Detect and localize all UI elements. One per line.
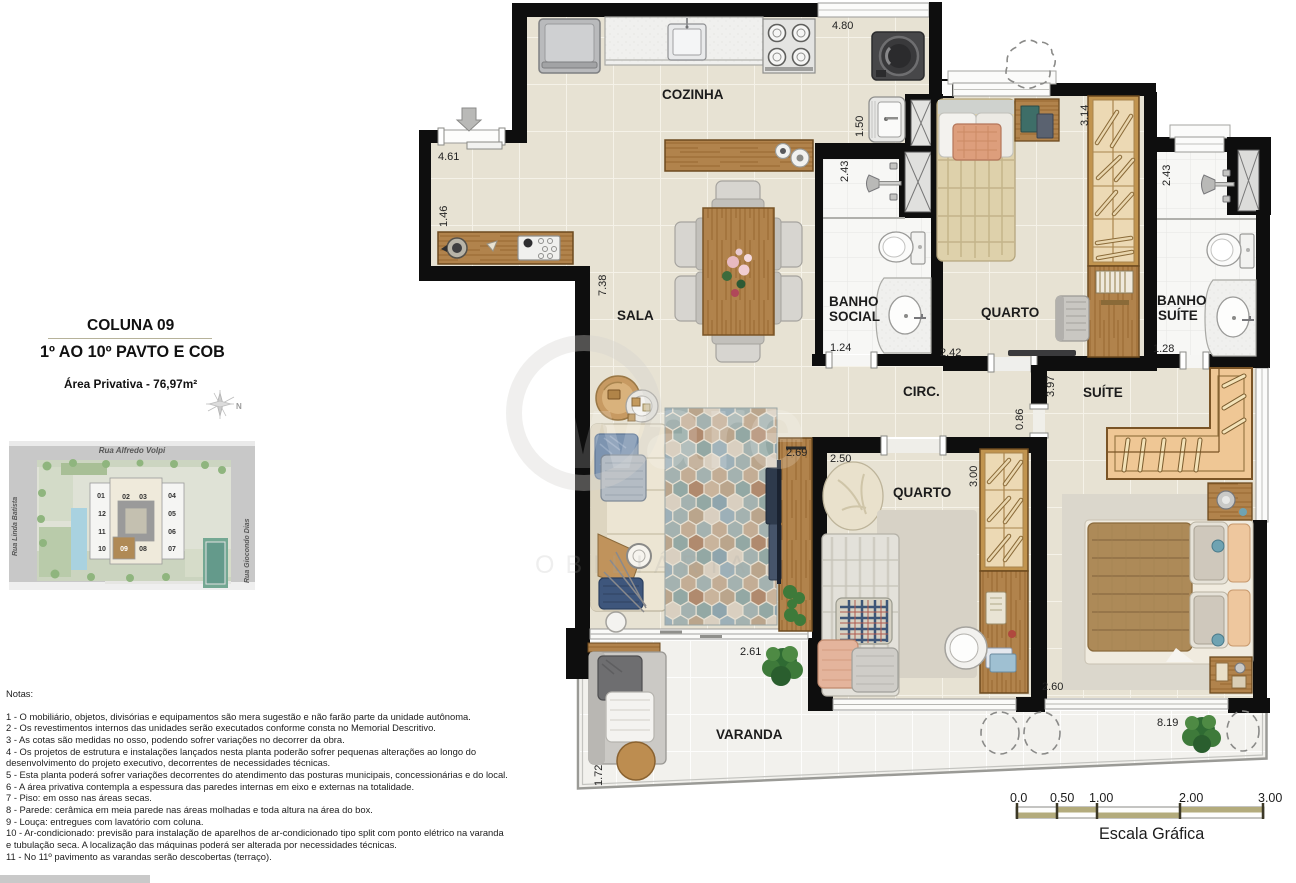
svg-text:3.14: 3.14 <box>1079 105 1091 126</box>
svg-text:0.0: 0.0 <box>1010 791 1027 805</box>
svg-text:2.00: 2.00 <box>1179 791 1203 805</box>
svg-text:7.38: 7.38 <box>597 275 609 296</box>
svg-text:QUARTO: QUARTO <box>893 485 951 500</box>
svg-text:2.43: 2.43 <box>1161 165 1173 186</box>
svg-text:SOCIAL: SOCIAL <box>829 309 880 324</box>
svg-text:COZINHA: COZINHA <box>662 87 724 102</box>
svg-text:2.42: 2.42 <box>940 347 961 359</box>
svg-text:1.50: 1.50 <box>854 116 866 137</box>
svg-text:1.72: 1.72 <box>593 765 605 786</box>
svg-text:3.97: 3.97 <box>1045 376 1057 397</box>
svg-text:Escala Gráfica: Escala Gráfica <box>1099 825 1204 843</box>
svg-text:2.50: 2.50 <box>830 453 851 465</box>
svg-text:BANHO: BANHO <box>1157 293 1207 308</box>
svg-text:1.28: 1.28 <box>1153 343 1174 355</box>
svg-text:4.61: 4.61 <box>438 151 459 163</box>
svg-text:3.00: 3.00 <box>1258 791 1282 805</box>
svg-text:CIRC.: CIRC. <box>903 384 940 399</box>
svg-text:SUÍTE: SUÍTE <box>1083 385 1123 400</box>
svg-text:8.19: 8.19 <box>1157 717 1178 729</box>
svg-text:2.61: 2.61 <box>740 646 761 658</box>
svg-text:VARANDA: VARANDA <box>716 727 783 742</box>
svg-text:SALA: SALA <box>617 308 654 323</box>
svg-text:QUARTO: QUARTO <box>981 305 1039 320</box>
svg-text:0.50: 0.50 <box>1050 791 1074 805</box>
svg-text:OBILIÁRIA: OBILIÁRIA <box>535 550 756 579</box>
svg-text:3.00: 3.00 <box>968 466 980 487</box>
svg-text:ware: ware <box>559 370 806 491</box>
svg-text:2.69: 2.69 <box>786 447 807 459</box>
svg-text:1.00: 1.00 <box>1089 791 1113 805</box>
svg-text:2.43: 2.43 <box>839 161 851 182</box>
svg-text:1.24: 1.24 <box>830 342 851 354</box>
svg-text:2.60: 2.60 <box>1042 681 1063 693</box>
svg-text:4.80: 4.80 <box>832 20 853 32</box>
svg-text:1.46: 1.46 <box>438 206 450 227</box>
svg-text:SUÍTE: SUÍTE <box>1158 308 1198 323</box>
svg-text:BANHO: BANHO <box>829 294 879 309</box>
svg-text:0.86: 0.86 <box>1014 409 1026 430</box>
